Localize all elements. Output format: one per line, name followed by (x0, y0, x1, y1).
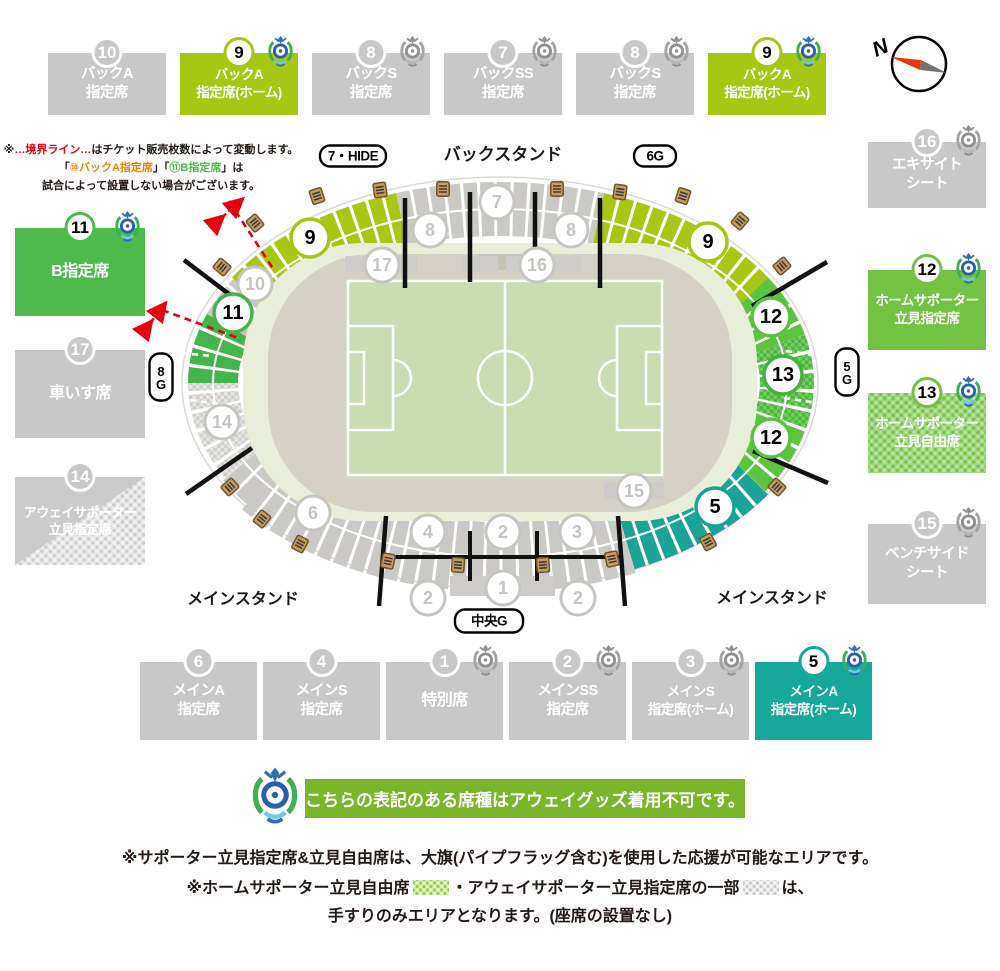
away-goods-banner-text: こちらの表記のある席種はアウェイグッズ着用不可です。 (305, 786, 745, 811)
section-number-badge: 15 (912, 508, 943, 539)
stadium-section-number-13: 13 (764, 356, 802, 394)
stadium-section-number-17: 17 (365, 248, 399, 282)
stand-label: バックスタンド (444, 145, 563, 164)
svg-text:2: 2 (423, 588, 433, 608)
svg-text:13: 13 (772, 364, 794, 386)
boundary-arrow-icon (218, 204, 237, 221)
club-crest-gray-icon (955, 124, 982, 156)
seat-legend-section-11: 11B指定席 (15, 228, 145, 316)
seat-legend-section-9: 9バックA指定席(ホーム) (708, 53, 826, 115)
section-number-badge: 8 (620, 37, 651, 68)
svg-text:中央G: 中央G (471, 613, 507, 629)
seat-legend-section-1: 1特別席 (386, 662, 503, 740)
boundary-note-line: 「⑩バックA指定席」「⑪B指定席」は (2, 159, 300, 177)
club-crest-gray-icon (718, 644, 745, 676)
section-number-badge: 3 (675, 646, 706, 677)
seat-legend-label: バックS指定席 (609, 65, 660, 103)
seat-legend-label: メインS指定席(ホーム) (648, 683, 734, 719)
club-crest-icon (841, 644, 868, 676)
seat-legend-section-4: 4メインS指定席 (263, 662, 380, 740)
boundary-note: ※…境界ライン…はチケット販売枚数によって変動します。「⑩バックA指定席」「⑪B… (2, 141, 300, 195)
stadium-section-number-4: 4 (411, 515, 445, 549)
svg-text:6: 6 (308, 503, 318, 523)
section-number-badge: 10 (92, 37, 123, 68)
club-crest-gray-icon (472, 644, 499, 676)
stadium-section-number-2: 2 (561, 581, 595, 615)
seat-legend-label: 車いす席 (49, 383, 111, 404)
seat-legend-section-9: 9バックA指定席(ホーム) (180, 53, 298, 115)
club-crest-icon (114, 210, 141, 242)
stadium-section-number-11: 11 (214, 294, 252, 332)
stadium-section-number-6: 6 (296, 496, 330, 530)
seat-legend-label: バックS指定席 (345, 65, 396, 103)
svg-text:8G: 8G (156, 364, 166, 392)
svg-text:9: 9 (304, 227, 315, 249)
seat-legend-section-17: 17車いす席 (15, 350, 145, 438)
green-checker-swatch (413, 880, 449, 895)
section-number-badge: 5 (798, 646, 829, 677)
svg-text:3: 3 (572, 522, 582, 542)
seat-legend-label: メインSS指定席 (537, 682, 597, 720)
svg-text:10: 10 (245, 274, 265, 294)
seat-legend-section-14: 14アウェイサポーター立見指定席 (15, 477, 145, 565)
seat-legend-label: メインS指定席 (296, 682, 347, 720)
gray-checker-swatch (743, 880, 779, 895)
seat-legend-label: メインA指定席 (173, 682, 225, 720)
stadium-section-number-2: 2 (486, 515, 520, 549)
section-number-badge: 6 (183, 646, 214, 677)
stadium-section-number-1: 1 (486, 571, 520, 605)
svg-text:12: 12 (760, 427, 782, 449)
club-crest-gray-icon (663, 35, 690, 67)
club-crest-icon (250, 766, 300, 824)
compass-north-label: N (869, 34, 893, 62)
seat-legend-section-8: 8バックS指定席 (312, 53, 430, 115)
section-number-badge: 7 (488, 37, 519, 68)
section-number-badge: 9 (752, 37, 783, 68)
stadium-section-number-5: 5 (696, 488, 734, 526)
section-11 (213, 326, 229, 383)
stadium-section-number-12: 12 (752, 419, 790, 457)
away-goods-banner: こちらの表記のある席種はアウェイグッズ着用不可です。 (305, 779, 745, 818)
seat-legend-label: エキサイトシート (892, 156, 962, 194)
seat-legend-section-8: 8バックS指定席 (576, 53, 694, 115)
footer-note-flags: ※サポーター立見指定席&立見自由席は、大旗(パイプフラッグ含む)を使用した応援が… (0, 844, 1000, 868)
boundary-note-line: 試合によって設置しない場合がございます。 (2, 177, 300, 195)
club-crest-gray-icon (399, 35, 426, 67)
seat-legend-label: バックA指定席 (81, 65, 133, 103)
svg-text:8: 8 (566, 220, 576, 240)
stadium-section-number-8: 8 (554, 213, 588, 247)
club-crest-gray-icon (595, 644, 622, 676)
svg-text:7・HIDE: 7・HIDE (328, 149, 379, 164)
svg-text:6G: 6G (646, 149, 663, 164)
section-number-badge: 4 (306, 646, 337, 677)
seat-legend-section-13: 13ホームサポーター立見自由席 (868, 393, 986, 473)
seat-legend-label: ホームサポーター立見自由席 (875, 415, 979, 451)
seat-legend-section-16: 16エキサイトシート (868, 142, 986, 208)
svg-text:16: 16 (527, 255, 547, 275)
seat-legend-label: アウェイサポーター立見指定席 (24, 504, 137, 538)
club-crest-icon (267, 35, 294, 67)
svg-text:17: 17 (372, 255, 392, 275)
boundary-arrow-icon (147, 309, 161, 327)
section-number-badge: 13 (912, 377, 943, 408)
gate-label-7・HIDE: 7・HIDE (320, 146, 386, 167)
section-number-badge: 1 (429, 646, 460, 677)
stadium-section-number-14: 14 (205, 405, 239, 439)
section-number-badge: 8 (356, 37, 387, 68)
stadium-section-number-7: 7 (480, 185, 514, 219)
seat-legend-section-12: 12ホームサポーター立見指定席 (868, 270, 986, 350)
pitch (345, 278, 665, 478)
stadium-section-number-8: 8 (413, 213, 447, 247)
stadium-section-number-9: 9 (689, 223, 727, 261)
club-crest-gray-icon (531, 35, 558, 67)
stand-label: メインスタンド (187, 590, 299, 608)
svg-text:1: 1 (498, 578, 508, 598)
club-crest-icon (795, 35, 822, 67)
seat-legend-section-7: 7バックSS指定席 (444, 53, 562, 115)
svg-text:8: 8 (425, 220, 435, 240)
svg-text:11: 11 (222, 302, 243, 324)
gate-label-5G: 5G (836, 349, 859, 396)
section-number-badge: 16 (912, 126, 943, 157)
footer-note-rail-areas-cont: 手すりのみエリアとなります。(座席の設置なし) (0, 902, 1000, 926)
stadium-section-number-2: 2 (411, 581, 445, 615)
seat-legend-section-3: 3メインS指定席(ホーム) (632, 662, 749, 740)
svg-text:9: 9 (702, 231, 713, 253)
seat-legend-label: バックSS指定席 (473, 65, 533, 103)
svg-text:14: 14 (212, 412, 232, 432)
svg-text:2: 2 (498, 522, 508, 542)
gate-label-中央G: 中央G (455, 610, 523, 633)
stadium-section-number-3: 3 (560, 515, 594, 549)
club-crest-icon (955, 375, 982, 407)
stand-label: メインスタンド (716, 589, 828, 607)
stadium-section-number-12: 12 (752, 298, 790, 336)
seat-legend-label: 特別席 (421, 690, 468, 711)
stadium-section-number-15: 15 (617, 474, 651, 508)
seat-legend-label: ホームサポーター立見指定席 (875, 292, 979, 328)
stadium-seating-map: 9878910111716121312146423212155 7・HIDE6G… (0, 0, 1000, 971)
seat-legend-section-2: 2メインSS指定席 (509, 662, 626, 740)
section-number-badge: 14 (65, 461, 96, 492)
gate-label-8G: 8G (150, 354, 173, 401)
seat-legend-section-5: 5メインA指定席(ホーム) (755, 662, 872, 740)
svg-text:5: 5 (709, 496, 720, 518)
gate-label-6G: 6G (634, 146, 676, 167)
seat-legend-section-6: 6メインA指定席 (140, 662, 257, 740)
seat-legend-label: バックA指定席(ホーム) (196, 66, 282, 102)
seat-legend-label: バックA指定席(ホーム) (724, 66, 810, 102)
svg-text:7: 7 (492, 192, 502, 212)
section-number-badge: 9 (224, 37, 255, 68)
club-crest-icon (955, 252, 982, 284)
section-number-badge: 11 (65, 212, 96, 243)
stadium-section-number-9: 9 (291, 219, 329, 257)
svg-text:2: 2 (573, 588, 583, 608)
seat-legend-label: メインA指定席(ホーム) (771, 683, 857, 719)
seat-legend-label: ベンチサイドシート (885, 545, 969, 583)
svg-text:5G: 5G (842, 359, 852, 387)
stadium-section-number-16: 16 (520, 248, 554, 282)
svg-text:15: 15 (624, 481, 644, 501)
section-number-badge: 2 (552, 646, 583, 677)
seat-legend-section-10: 10バックA指定席 (48, 53, 166, 115)
club-crest-gray-icon (955, 506, 982, 538)
boundary-note-line: ※…境界ライン…はチケット販売枚数によって変動します。 (2, 141, 300, 159)
seat-legend-label: B指定席 (51, 261, 109, 282)
section-number-badge: 17 (65, 334, 96, 365)
seat-legend-section-15: 15ベンチサイドシート (868, 524, 986, 604)
section-number-badge: 12 (912, 254, 943, 285)
footer-note-rail-areas: ※ホームサポーター立見自由席・アウェイサポーター立見指定席の一部は、 (0, 874, 1000, 898)
compass-icon: N (869, 34, 947, 91)
svg-text:4: 4 (423, 522, 433, 542)
svg-text:12: 12 (760, 306, 782, 328)
